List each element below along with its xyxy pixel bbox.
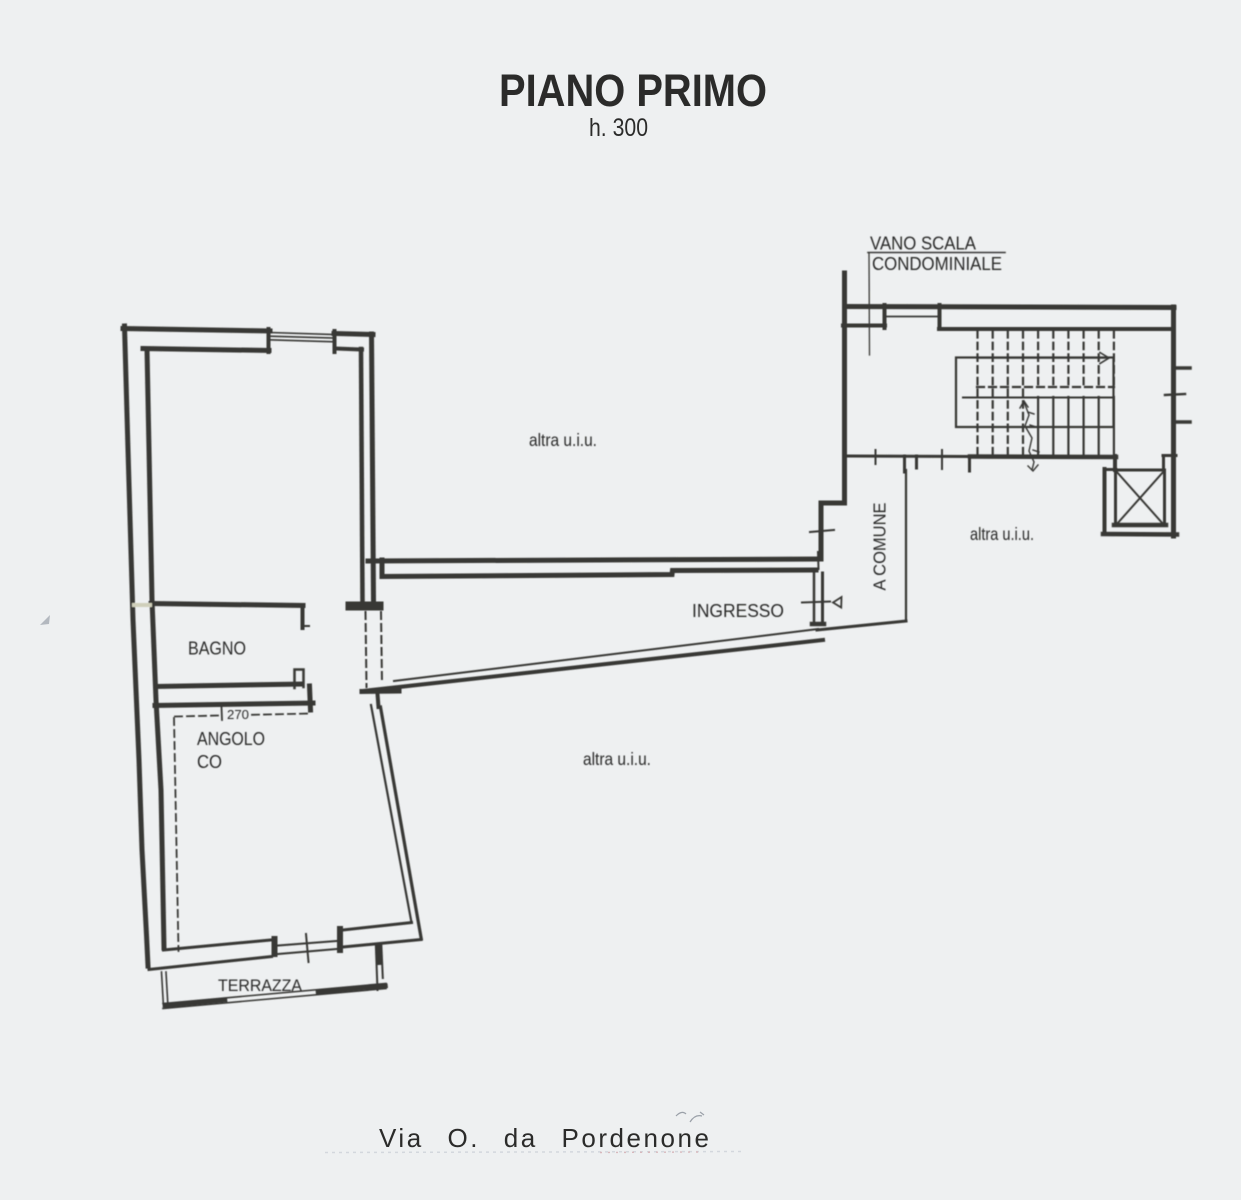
svg-text:270: 270 xyxy=(227,707,249,722)
svg-text:TERRAZZA: TERRAZZA xyxy=(218,977,302,995)
svg-text:BAGNO: BAGNO xyxy=(188,639,246,659)
svg-text:PIANO PRIMO: PIANO PRIMO xyxy=(499,65,767,116)
svg-text:h. 300: h. 300 xyxy=(589,114,648,142)
svg-text:VANO SCALA: VANO SCALA xyxy=(870,234,976,254)
svg-text:ANGOLO: ANGOLO xyxy=(197,729,265,749)
svg-text:altra u.i.u.: altra u.i.u. xyxy=(970,524,1034,544)
svg-text:INGRESSO: INGRESSO xyxy=(692,601,784,621)
svg-text:A COMUNE: A COMUNE xyxy=(870,503,890,591)
svg-text:altra u.i.u.: altra u.i.u. xyxy=(529,430,597,450)
svg-text:CONDOMINIALE: CONDOMINIALE xyxy=(872,254,1002,274)
svg-text:altra u.i.u.: altra u.i.u. xyxy=(583,749,651,769)
svg-text:CO: CO xyxy=(197,752,222,772)
